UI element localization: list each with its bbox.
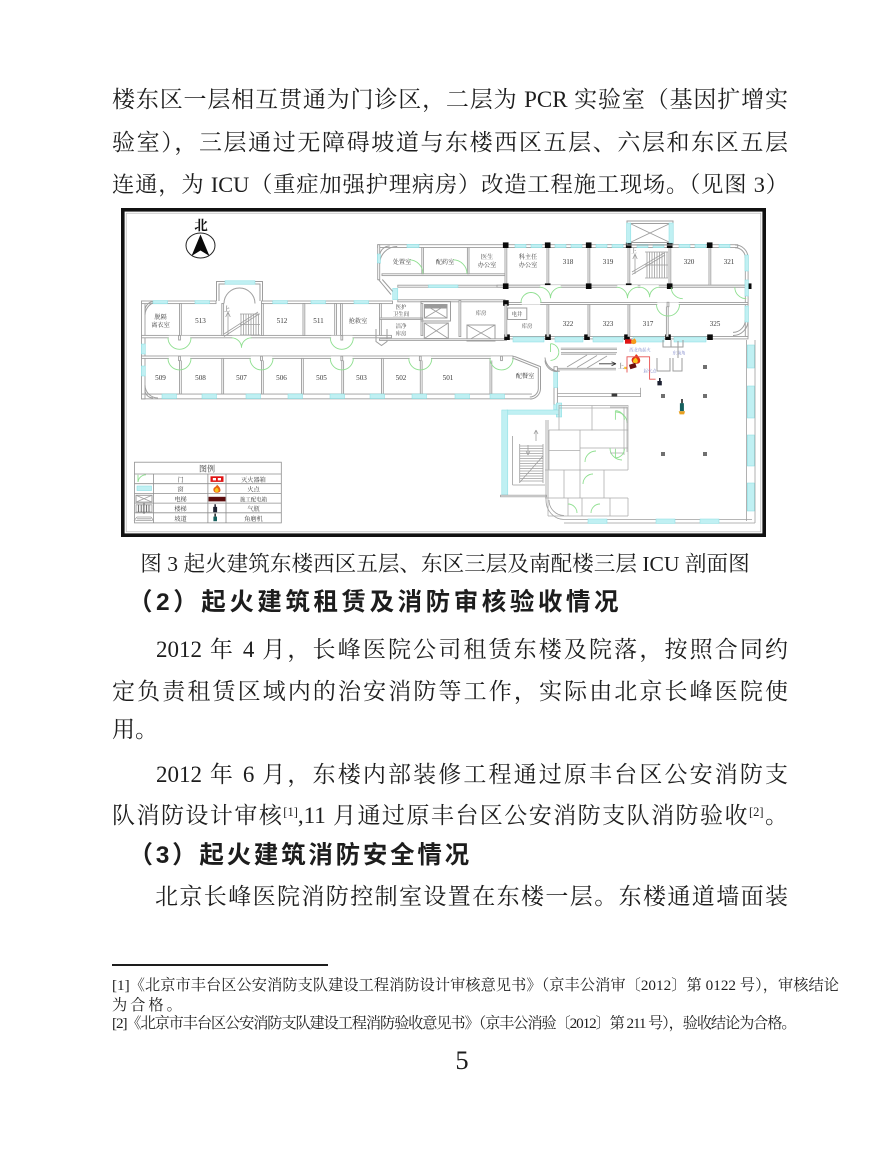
svg-text:坡道: 坡道 [174, 515, 186, 523]
svg-text:起火点: 起火点 [644, 368, 658, 375]
svg-text:角磨机: 角磨机 [244, 515, 263, 523]
svg-text:科主任: 科主任 [519, 253, 538, 261]
svg-text:脱隔: 脱隔 [154, 313, 166, 321]
svg-text:电梯: 电梯 [174, 495, 186, 503]
svg-text:506: 506 [276, 374, 287, 382]
svg-text:505: 505 [316, 374, 327, 382]
svg-text:上: 上 [631, 247, 637, 255]
svg-text:上: 上 [618, 361, 625, 370]
svg-text:办公室: 办公室 [519, 261, 538, 269]
svg-text:灭火器箱: 灭火器箱 [241, 476, 266, 484]
svg-text:513: 513 [195, 317, 206, 325]
svg-text:库房: 库房 [396, 330, 407, 338]
svg-text:气瓶: 气瓶 [247, 505, 260, 513]
svg-text:323: 323 [603, 320, 614, 328]
svg-text:东南角: 东南角 [673, 349, 686, 356]
svg-text:320: 320 [684, 258, 695, 266]
svg-text:509: 509 [155, 374, 166, 382]
svg-text:医生: 医生 [481, 253, 493, 261]
svg-text:库房: 库房 [522, 322, 533, 330]
svg-text:楼梯: 楼梯 [174, 505, 186, 513]
svg-text:317: 317 [643, 320, 654, 328]
svg-text:施工配电箱: 施工配电箱 [240, 495, 268, 503]
svg-text:抢救室: 抢救室 [349, 317, 368, 325]
svg-text:北: 北 [194, 218, 208, 233]
svg-text:配药室: 配药室 [436, 258, 455, 266]
svg-text:上: 上 [224, 305, 230, 313]
svg-text:火点: 火点 [247, 486, 260, 494]
svg-text:512: 512 [277, 317, 288, 325]
svg-text:医护: 医护 [396, 303, 407, 311]
svg-text:办公室: 办公室 [478, 261, 497, 269]
svg-text:318: 318 [563, 258, 574, 266]
svg-text:508: 508 [195, 374, 206, 382]
svg-text:处置室: 处置室 [393, 258, 412, 266]
svg-text:洁净: 洁净 [396, 322, 407, 330]
svg-text:门: 门 [177, 476, 183, 484]
svg-text:503: 503 [356, 374, 367, 382]
svg-text:卫生间: 卫生间 [393, 310, 410, 318]
svg-text:图例: 图例 [199, 464, 215, 474]
svg-text:电井: 电井 [512, 310, 523, 318]
svg-text:502: 502 [396, 374, 407, 382]
svg-text:501: 501 [443, 374, 454, 382]
svg-text:西北角起火: 西北角起火 [629, 347, 651, 354]
svg-text:511: 511 [313, 317, 324, 325]
svg-text:322: 322 [563, 320, 574, 328]
svg-text:321: 321 [724, 258, 735, 266]
svg-text:325: 325 [710, 320, 721, 328]
svg-text:库房: 库房 [476, 309, 487, 317]
svg-text:507: 507 [236, 374, 247, 382]
svg-text:窗: 窗 [177, 486, 183, 494]
svg-text:319: 319 [603, 258, 614, 266]
svg-text:配餐室: 配餐室 [516, 372, 535, 380]
svg-text:离衣室: 离衣室 [151, 321, 170, 329]
